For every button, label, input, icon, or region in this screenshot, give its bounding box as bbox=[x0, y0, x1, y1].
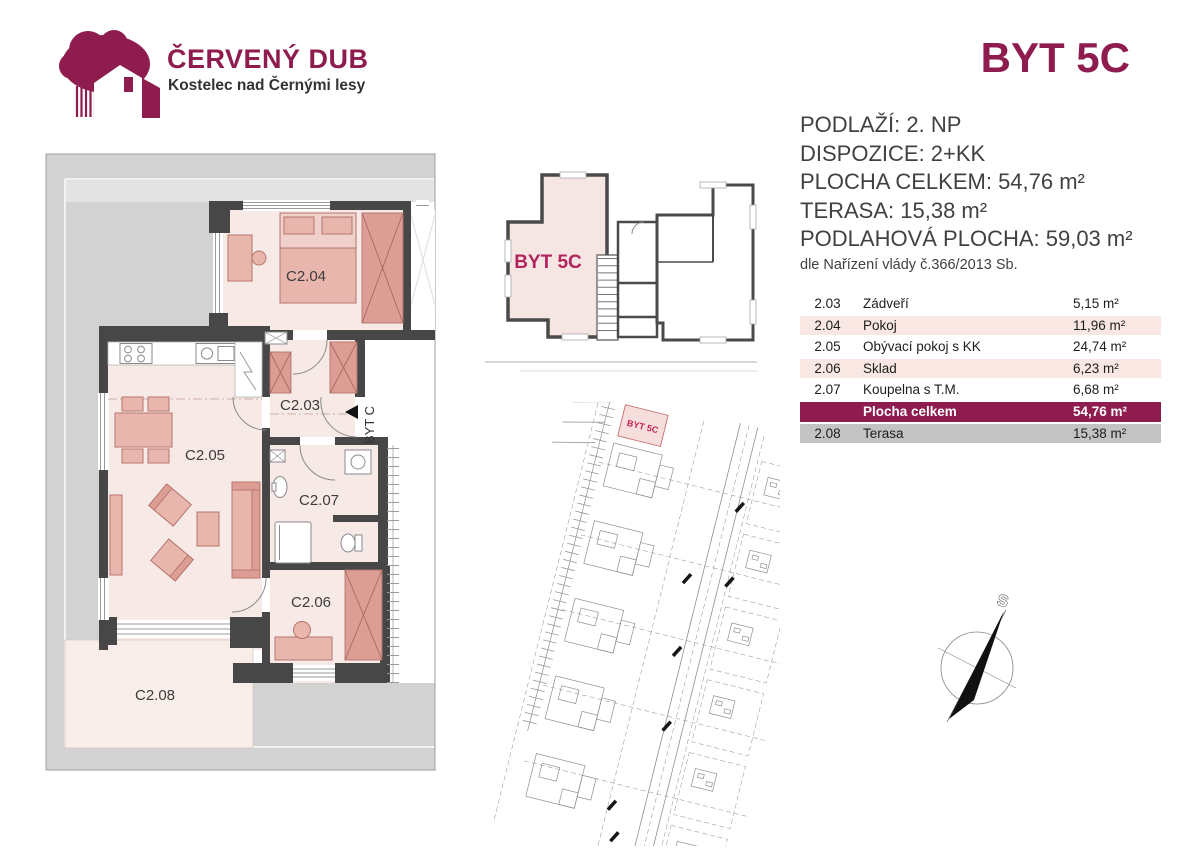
room-label: C2.05 bbox=[185, 447, 225, 464]
room-name: Terasa bbox=[855, 424, 1073, 444]
room-area: 11,96 m² bbox=[1073, 316, 1161, 336]
room-label: C2.03 bbox=[280, 397, 320, 414]
page-title: BYT 5C bbox=[800, 34, 1130, 82]
room-area: 5,15 m² bbox=[1073, 294, 1161, 314]
room-code bbox=[800, 402, 855, 422]
room-name: Pokoj bbox=[855, 316, 1073, 336]
room-name: Sklad bbox=[855, 359, 1073, 379]
dining-set bbox=[115, 397, 172, 463]
table-row-total: Plocha celkem 54,76 m² bbox=[800, 402, 1161, 424]
coffee-table bbox=[197, 512, 219, 546]
table-row: 2.06 Sklad 6,23 m² bbox=[800, 359, 1161, 381]
info-terrace-area: TERASA: 15,38 m² bbox=[800, 197, 1190, 226]
room-name: Plocha celkem bbox=[855, 402, 1073, 422]
core-rooms bbox=[618, 222, 657, 337]
room-area: 6,23 m² bbox=[1073, 359, 1161, 379]
room-area-table: 2.03 Zádveří 5,15 m² 2.04 Pokoj 11,96 m²… bbox=[800, 294, 1161, 445]
bedroom-wardrobe bbox=[362, 213, 403, 323]
room-code: 2.03 bbox=[800, 294, 855, 314]
room-code: 2.05 bbox=[800, 337, 855, 357]
info-total-area: PLOCHA CELKEM: 54,76 m² bbox=[800, 168, 1190, 197]
compass-north-label: S bbox=[995, 592, 1010, 611]
site-highlight-house: BYT 5C bbox=[618, 405, 668, 447]
sofa bbox=[232, 482, 260, 578]
info-regulation-note: dle Nařízení vlády č.366/2013 Sb. bbox=[800, 257, 1190, 273]
room-label: C2.04 bbox=[286, 268, 326, 285]
brand-subtitle: Kostelec nad Černými lesy bbox=[168, 77, 365, 95]
room-code: 2.04 bbox=[800, 316, 855, 336]
toilet-icon bbox=[341, 534, 362, 552]
table-row: 2.05 Obývací pokoj s KK 24,74 m² bbox=[800, 337, 1161, 359]
info-floor: PODLAŽÍ: 2. NP bbox=[800, 111, 1190, 140]
info-floor-area: PODLAHOVÁ PLOCHA: 59,03 m² bbox=[800, 225, 1190, 254]
bed bbox=[280, 213, 356, 303]
room-label: C2.07 bbox=[299, 492, 339, 509]
room-code: 2.06 bbox=[800, 359, 855, 379]
brand-name: ČERVENÝ DUB bbox=[167, 44, 369, 75]
room-label: C2.06 bbox=[291, 594, 331, 611]
table-row: 2.03 Zádveří 5,15 m² bbox=[800, 294, 1161, 316]
room-name: Obývací pokoj s KK bbox=[855, 337, 1073, 357]
entry-arrow-label: BYT C bbox=[362, 406, 377, 444]
room-area: 54,76 m² bbox=[1073, 402, 1161, 422]
unit-datasheet: ČERVENÝ DUB Kostelec nad Černými lesy BY… bbox=[0, 0, 1200, 848]
parcel-number-marks bbox=[599, 488, 753, 846]
shelf-cabinet bbox=[110, 495, 122, 575]
site-houses-left bbox=[526, 443, 676, 812]
unit-info: PODLAŽÍ: 2. NP DISPOZICE: 2+KK PLOCHA CE… bbox=[800, 111, 1190, 273]
overview-plan: BYT 5C bbox=[480, 158, 760, 393]
table-row: 2.08 Terasa 15,38 m² bbox=[800, 424, 1161, 446]
room-name: Koupelna s T.M. bbox=[855, 380, 1073, 400]
room-code: 2.08 bbox=[800, 424, 855, 444]
brand-logo-icon bbox=[52, 26, 164, 124]
room-label: C2.08 bbox=[135, 687, 175, 704]
room-area: 6,68 m² bbox=[1073, 380, 1161, 400]
bathtub-icon bbox=[275, 522, 311, 563]
storage-wardrobe bbox=[345, 570, 382, 660]
site-plan: BYT 5C bbox=[445, 402, 780, 846]
table-row: 2.04 Pokoj 11,96 m² bbox=[800, 316, 1161, 338]
overview-unit-label: BYT 5C bbox=[514, 252, 582, 273]
main-floor-plan: BYT C C2.04 C2.03 C2.05 C2.07 C2.06 C2.0… bbox=[40, 145, 450, 845]
info-layout: DISPOZICE: 2+KK bbox=[800, 140, 1190, 169]
desk-chair bbox=[252, 251, 266, 265]
neighbour-unit-outline bbox=[657, 182, 756, 343]
room-code: 2.07 bbox=[800, 380, 855, 400]
table-row: 2.07 Koupelna s T.M. 6,68 m² bbox=[800, 380, 1161, 402]
stair-core bbox=[597, 255, 618, 340]
room-name: Zádveří bbox=[855, 294, 1073, 314]
room-area: 15,38 m² bbox=[1073, 424, 1161, 444]
room-area: 24,74 m² bbox=[1073, 337, 1161, 357]
compass-north-icon: S bbox=[930, 585, 1040, 725]
neighbour-unit-cut bbox=[411, 210, 435, 330]
